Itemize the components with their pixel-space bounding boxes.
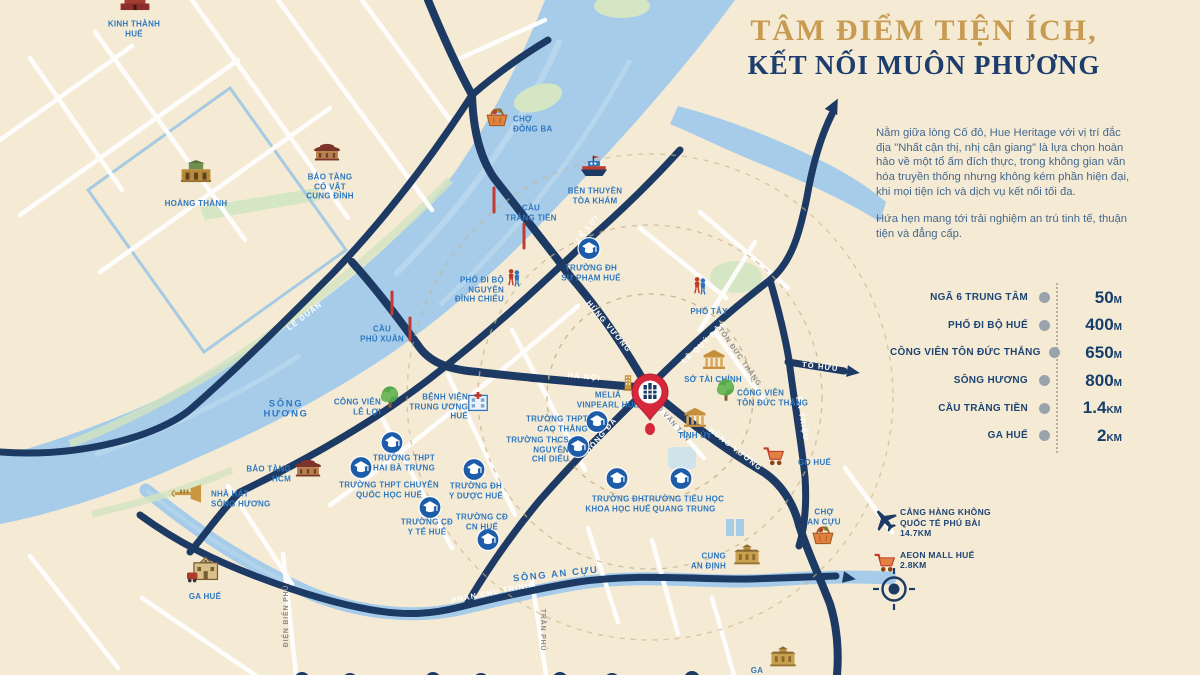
benh-vien-trung-uong-hue-label: BỆNH VIỆN TRUNG ƯƠNG HUẾ — [409, 393, 468, 422]
cung-an-dinh-label: CUNG AN ĐỊNH — [691, 551, 726, 570]
kinh-thanh-hue-label: KINH THÀNH HUẾ — [108, 19, 160, 38]
song-huong-label: SÔNG HƯƠNG — [263, 399, 308, 418]
go-hue-label: GO HUẾ — [798, 458, 831, 468]
truong-dh-y-duoc-hue-label: TRƯỜNG ĐH Y DƯỢC HUẾ — [449, 481, 503, 500]
truong-dh-khoa-hoc-hue-school-icon — [602, 464, 632, 499]
cau-trang-tien-label: CẦU TRÀNG TIỀN — [505, 203, 556, 222]
bao-tang-hcm-label: BẢO TÀNG HCM — [246, 464, 291, 483]
truong-thpt-hai-ba-trung-label: TRƯỜNG THPT HAI BÀ TRƯNG — [373, 453, 435, 472]
cung-an-dinh-palace-icon — [732, 542, 762, 577]
bao-tang-hcm-pavilion-icon — [293, 454, 323, 489]
pho-di-bo-nguyen-dinh-chieu-label: PHỐ ĐI BỘ NGUYỄN ĐÌNH CHIỂU — [455, 276, 504, 305]
cong-vien-le-loi-label: CÔNG VIÊN LÊ LỢI — [334, 397, 381, 416]
truong-cd-cn-hue-label: TRƯỜNG CĐ CN HUẾ — [456, 512, 508, 531]
ga-partial-bottom-label: GA — [751, 666, 764, 675]
pho-tay-label: PHỐ TÂY — [690, 307, 727, 317]
ga-hue-station-icon — [187, 555, 223, 596]
truong-tieu-hoc-quang-trung-label: TRƯỜNG TIỂU HỌC QUANG TRUNG — [644, 494, 724, 513]
cong-vien-ton-duc-thang-label: CÔNG VIÊN TÔN ĐỨC THẮNG — [737, 388, 808, 407]
truong-dh-su-pham-hue-label: TRƯỜNG ĐH SƯ PHẠM HUẾ — [561, 263, 621, 282]
cho-an-cuu-label: CHỢ AN CỰU — [807, 507, 840, 526]
bao-tang-co-vat-cung-dinh-label: BẢO TÀNG CỔ VẬT CUNG ĐÌNH — [306, 173, 354, 202]
cho-dong-ba-basket-icon — [482, 103, 512, 138]
truong-cd-y-te-hue-label: TRƯỜNG CĐ Y TẾ HUẾ — [401, 517, 453, 536]
ga-partial-bottom-palace-icon — [768, 644, 798, 675]
hue-heritage-location-map: LÊ DUẨNLÊ LỢIHÙNG VƯƠNGHÀ NỘILÊ QUÝ ĐÔNT… — [0, 0, 1200, 675]
poi-layer: KINH THÀNH HUẾ HOÀNG THÀNH BẢO TÀNG CỔ V… — [0, 0, 1200, 675]
tinh-uy-label: TỈNH ỦY — [678, 431, 712, 441]
project-pin[interactable] — [620, 368, 680, 444]
cau-phu-xuan-label: CẦU PHÚ XUÂN — [360, 324, 404, 343]
ga-hue-label: GA HUẾ — [189, 592, 221, 602]
hoang-thanh-label: HOÀNG THÀNH — [165, 199, 228, 209]
nha-hat-song-huong-label: NHÀ HÁT SÔNG HƯƠNG — [211, 489, 271, 508]
ben-thuyen-toa-kham-boat-icon — [577, 151, 611, 190]
ben-thuyen-toa-kham-label: BẾN THUYỀN TÒA KHÁM — [568, 186, 623, 205]
go-hue-cart-icon — [759, 442, 789, 477]
building-icon — [643, 383, 658, 399]
hoang-thanh-gate-icon — [179, 158, 213, 197]
truong-tieu-hoc-quang-trung-school-icon — [666, 464, 696, 499]
bao-tang-co-vat-cung-dinh-pavilion-icon — [312, 138, 342, 173]
truong-thcs-nguyen-chi-dieu-label: TRƯỜNG THCS NGUYỄN CHÍ DIỂU — [506, 436, 569, 465]
pho-tay-people-icon — [685, 273, 715, 308]
pin-dot — [645, 423, 655, 435]
nha-hat-song-huong-trumpet-icon — [171, 477, 205, 516]
truong-dh-khoa-hoc-hue-label: TRƯỜNG ĐH KHOA HỌC HUẾ — [585, 494, 650, 513]
cho-dong-ba-label: CHỢ ĐÔNG BA — [513, 114, 553, 133]
